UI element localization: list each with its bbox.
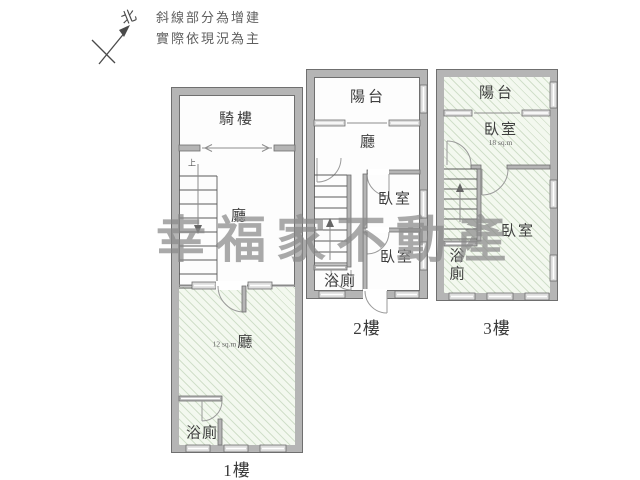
floor-label-3f: 3樓 xyxy=(437,314,557,339)
floor-plan-page: 北 斜線部分為增建 實際依現況為主 幸福家不動產 xyxy=(0,0,640,480)
room-label-bath-2f: 浴廁 xyxy=(324,270,356,291)
balcony-divider xyxy=(444,110,550,116)
window-symbol xyxy=(319,291,345,298)
window-symbol xyxy=(395,291,419,298)
stairs-icon xyxy=(444,169,481,241)
room-label-balcony-3f: 陽台 xyxy=(479,82,515,103)
door-icon xyxy=(363,289,387,313)
stairs-icon xyxy=(179,164,217,288)
room-label-balcony-2f: 陽台 xyxy=(350,86,386,107)
window-symbol xyxy=(420,190,427,218)
balcony-divider xyxy=(314,120,420,126)
annotation-line-1: 斜線部分為增建 xyxy=(156,8,261,29)
north-arrow-icon: 北 xyxy=(85,4,149,68)
window-symbol xyxy=(260,445,286,452)
annotation-note: 斜線部分為增建 實際依現況為主 xyxy=(156,8,261,50)
window-symbol xyxy=(186,445,210,452)
window-symbol xyxy=(487,293,513,300)
annex-front-wall xyxy=(179,281,295,312)
room-label-hall-2f: 廳 xyxy=(360,131,378,152)
floor-label-2f: 2樓 xyxy=(307,314,427,339)
floor-plan-1f: 騎樓 廳 上 12 sq.m廳 浴廁 xyxy=(172,88,302,452)
window-symbol xyxy=(550,180,557,208)
window-symbol xyxy=(192,282,216,289)
window-symbol xyxy=(550,82,557,108)
middle-partition xyxy=(471,165,550,169)
window-symbol xyxy=(224,445,248,452)
room-label-bedroom-upper-3f: 臥室18 sq.m xyxy=(484,123,518,147)
door-icon xyxy=(447,141,471,165)
shopfront-divider xyxy=(179,145,295,152)
north-label: 北 xyxy=(119,7,139,28)
room-label-bedroom-upper-2f: 臥室 xyxy=(378,188,412,209)
floor-label-1f: 1樓 xyxy=(172,456,302,480)
door-icon xyxy=(317,158,341,182)
room-label-bedroom-lower-2f: 臥室 xyxy=(380,246,414,267)
annex-hall-text: 廳 xyxy=(237,335,255,351)
door-icon xyxy=(482,169,508,195)
window-symbol xyxy=(420,242,427,270)
window-symbol xyxy=(420,85,427,113)
room-label-hall-1f: 廳 xyxy=(231,205,249,226)
floor-plan-3f: 陽台 臥室18 sq.m 臥室 浴 廁 xyxy=(437,70,557,300)
door-icon xyxy=(202,401,222,421)
floor-1-linework xyxy=(172,88,302,452)
bedroom-upper-text: 臥室 xyxy=(484,123,518,139)
window-symbol xyxy=(449,293,475,300)
room-label-bedroom-lower-3f: 臥室 xyxy=(501,220,535,241)
stairs-up-label: 上 xyxy=(188,158,196,169)
bedroom-upper-area-label: 18 sq.m xyxy=(489,139,513,147)
window-symbol xyxy=(525,293,549,300)
stairs-icon xyxy=(314,175,351,267)
window-symbol xyxy=(550,255,557,281)
room-label-bath-1f: 浴廁 xyxy=(186,422,218,443)
room-label-annex-hall: 12 sq.m廳 xyxy=(213,331,256,352)
floor-plan-2f: 陽台 廳 臥室 臥室 浴廁 xyxy=(307,70,427,298)
annotation-line-2: 實際依現況為主 xyxy=(156,29,261,50)
room-label-bath-char2-3f: 廁 xyxy=(449,263,464,284)
window-symbol xyxy=(248,282,272,289)
annex-area-label: 12 sq.m xyxy=(213,340,237,349)
room-label-arcade: 騎樓 xyxy=(219,108,255,129)
